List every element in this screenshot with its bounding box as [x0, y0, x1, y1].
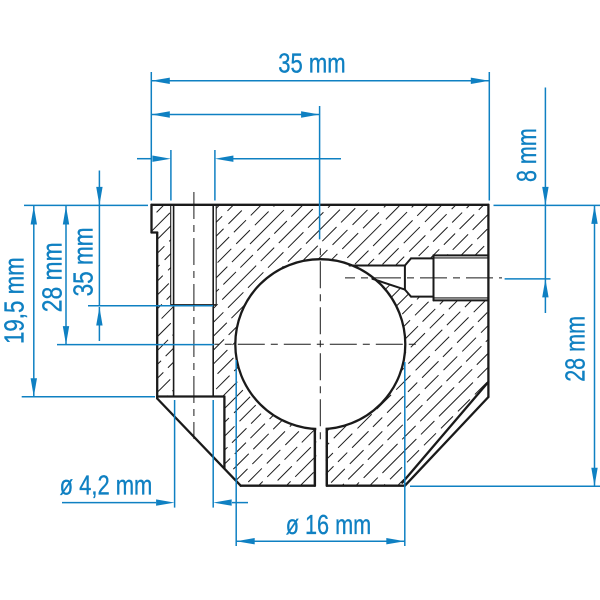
svg-text:8 mm: 8 mm	[511, 128, 542, 182]
svg-text:28 mm: 28 mm	[560, 316, 591, 382]
svg-text:ø 4,2 mm: ø 4,2 mm	[60, 470, 153, 501]
svg-text:35 mm: 35 mm	[68, 227, 99, 296]
svg-text:19,5 mm: 19,5 mm	[0, 257, 30, 344]
svg-text:28 mm: 28 mm	[37, 242, 68, 312]
svg-text:ø 16 mm: ø 16 mm	[286, 509, 371, 540]
svg-text:35 mm: 35 mm	[278, 48, 345, 79]
